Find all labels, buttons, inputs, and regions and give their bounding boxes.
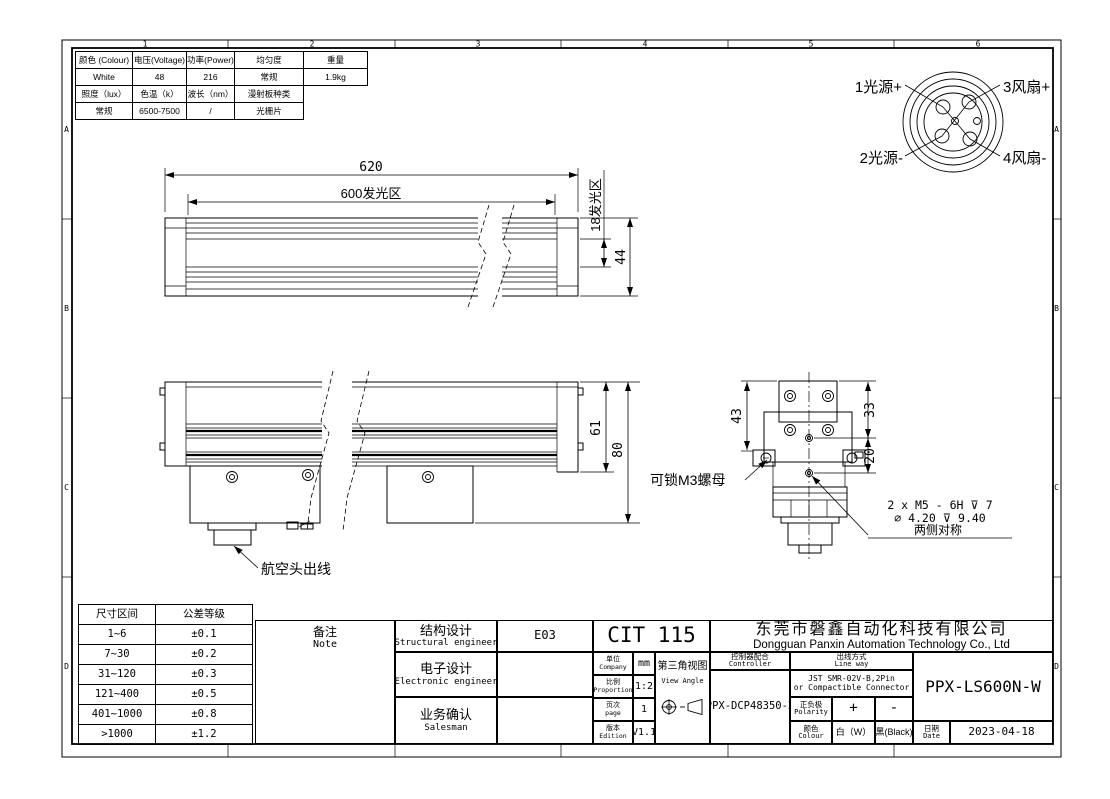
unit-value: mm: [633, 652, 655, 675]
zone-letter: B: [64, 304, 69, 313]
spec-cell: 48: [133, 69, 187, 86]
thread-note-line3: 两侧对称: [914, 523, 962, 537]
tolerance-cell: 31~120: [79, 665, 156, 685]
proportion-en: Proportion: [593, 687, 632, 694]
pin-label-1: 1光源+: [855, 79, 902, 96]
proportion-value: 1:2: [633, 675, 655, 698]
spec-cell: /: [187, 103, 235, 120]
pin-label-3: 3风扇+: [1003, 79, 1050, 96]
unit-en: Company: [599, 664, 626, 671]
colour-label: 颜色 Colour: [790, 721, 832, 744]
part-number: PPX-LS600N-W: [925, 678, 1041, 696]
company-name-en: Dongguan Panxin Automation Technology Co…: [753, 639, 1010, 652]
tolerance-cell: >1000: [79, 725, 156, 745]
engineering-drawing-sheet: 1 2 3 4 5 6 A B C D A B C D 1光源+ 3风扇+ 2光…: [0, 0, 1110, 799]
controller-value-text: PPX-DCP48350-2: [710, 701, 790, 713]
break-line: [492, 205, 514, 310]
side-view: 航空头出线 61 80: [160, 371, 640, 577]
dim-body-width: 44: [614, 249, 629, 265]
colour-white: 白（W）: [836, 727, 872, 737]
dim-end-43: 43: [730, 408, 745, 424]
lens-assembly: [773, 487, 847, 517]
view-angle-en: View Angle: [661, 678, 703, 686]
salesman-label: 业务确认 Salesman: [395, 697, 497, 744]
spec-cell: 功率(Power): [187, 52, 235, 69]
spec-cell-empty: [304, 103, 368, 120]
polarity-plus-cell: +: [832, 697, 875, 721]
tolerance-cell: ±1.2: [156, 725, 253, 745]
page-value: 1: [633, 698, 655, 721]
tolerance-cell: ±0.3: [156, 665, 253, 685]
colour-black-cell: 黑(Black): [875, 721, 913, 744]
aviation-connector-label: 航空头出线: [261, 561, 331, 577]
company-cell: 东莞市磐鑫自动化科技有限公司 Dongguan Panxin Automatio…: [710, 620, 1053, 652]
tolerance-header: 公差等级: [156, 605, 253, 625]
pin-label-4: 4风扇-: [1003, 150, 1046, 167]
zone-letter: A: [64, 125, 69, 134]
dim-overall-length: 620: [359, 160, 382, 175]
electronic-en: Electronic engineer: [395, 677, 497, 687]
end-view: 43 33 20 可锁M3螺母 2 x M5 - 6H ⊽ 7 ⌀ 4.20 ⊽…: [650, 372, 1012, 560]
controller-en: Controller: [729, 661, 771, 668]
tolerance-table: 尺寸区间 公差等级 1~6 ±0.1 7~30 ±0.2 31~120 ±0.3…: [78, 604, 253, 745]
mount-plate-left: [190, 466, 320, 523]
break-line: [343, 371, 369, 531]
dim-end-33: 33: [863, 402, 878, 418]
tolerance-cell: ±0.1: [156, 625, 253, 645]
note-label-en: Note: [313, 639, 337, 650]
controller-value: PPX-DCP48350-2: [710, 670, 790, 744]
spec-cell: 漫射板种类: [235, 86, 304, 103]
proportion-label: 比例 Proportion: [593, 675, 633, 698]
date-label: 日期 Date: [913, 721, 950, 744]
zone-number: 5: [809, 40, 814, 49]
structural-en: Structural engineer: [395, 638, 497, 648]
connector-pinout-view: 1光源+ 3风扇+ 2光源- 4风扇-: [855, 72, 1050, 172]
break-line: [467, 205, 489, 310]
unit-label: 单位 Company: [593, 652, 633, 675]
spec-cell: 波长（nm）: [187, 86, 235, 103]
tolerance-cell: 1~6: [79, 625, 156, 645]
date-value-text: 2023-04-18: [968, 726, 1034, 738]
dim-emit-width: 18发光区: [588, 178, 603, 231]
spec-cell: 均匀度: [235, 52, 304, 69]
zone-letter: C: [64, 483, 69, 492]
controller-label: 控制器配合 Controller: [710, 652, 790, 670]
spec-cell: 常规: [235, 69, 304, 86]
pin-label-2: 2光源-: [860, 150, 903, 167]
mount-plate-right: [387, 466, 473, 523]
spec-cell: White: [76, 69, 133, 86]
page-value-text: 1: [641, 704, 647, 715]
spec-cell: 1.9kg: [304, 69, 368, 86]
dim-end-20: 20: [863, 448, 878, 464]
thread-note-line1: 2 x M5 - 6H ⊽ 7: [887, 498, 992, 512]
spec-cell-empty: [304, 86, 368, 103]
tolerance-cell: ±0.8: [156, 705, 253, 725]
structural-value: E03: [534, 629, 556, 642]
colour-black: 黑(Black): [876, 727, 913, 737]
edition-value-text: V1.1: [633, 727, 655, 738]
view-angle-cn: 第三角视图: [658, 661, 708, 672]
note-label-cn: 备注: [313, 626, 337, 639]
salesman-cn: 业务确认: [420, 708, 472, 723]
note-cell: 备注 Note: [255, 620, 395, 744]
drawing-code-cell: CIT 115: [593, 620, 710, 652]
third-angle-projection-icon: [660, 696, 706, 718]
polarity-minus: -: [890, 701, 898, 717]
spec-cell: 照度（lux）: [76, 86, 133, 103]
salesman-value: [497, 697, 593, 744]
m3-nut-label: 可锁M3螺母: [650, 472, 725, 488]
spec-cell: 216: [187, 69, 235, 86]
polarity-label: 正负极 Polarity: [790, 697, 832, 721]
drawing-code: CIT 115: [607, 624, 696, 648]
electronic-engineer-label: 电子设计 Electronic engineer: [395, 652, 497, 697]
tolerance-header: 尺寸区间: [79, 605, 156, 625]
tolerance-cell: ±0.2: [156, 645, 253, 665]
end-cap: [788, 523, 832, 545]
structural-cn: 结构设计: [420, 624, 472, 639]
lineway-label: 出线方式 Line way: [790, 652, 913, 670]
page-label: 页次 page: [593, 698, 633, 721]
tolerance-cell: 401~1000: [79, 705, 156, 725]
dim-total-height: 80: [611, 442, 626, 458]
spec-table: 颜色 (Colour) 电压(Voltage) 功率(Power) 均匀度 重量…: [75, 51, 368, 120]
tolerance-cell: 121~400: [79, 685, 156, 705]
edition-label: 版本 Edition: [593, 721, 633, 744]
polarity-plus: +: [849, 701, 857, 717]
aviation-connector: [208, 523, 256, 530]
zone-letter: A: [1054, 125, 1059, 134]
edition-en: Edition: [599, 733, 626, 740]
view-angle-cell: 第三角视图 View Angle: [655, 652, 710, 744]
lineway-value: JST SMR-02V-B,2Pin or Compactible Connec…: [790, 670, 913, 697]
spec-cell: 颜色 (Colour): [76, 52, 133, 69]
structural-engineer-label: 结构设计 Structural engineer: [395, 620, 497, 652]
colour-en: Colour: [798, 733, 823, 740]
dim-emit-length: 600发光区: [341, 186, 402, 201]
spec-cell: 光栅片: [235, 103, 304, 120]
zone-letter: D: [64, 662, 69, 671]
part-number-cell: PPX-LS600N-W: [913, 652, 1053, 721]
structural-engineer-value: E03: [497, 620, 593, 652]
edition-value: V1.1: [633, 721, 655, 744]
zone-letter: B: [1054, 304, 1059, 313]
spec-cell: 重量: [304, 52, 368, 69]
spec-cell: 色温（k）: [133, 86, 187, 103]
spec-cell: 6500-7500: [133, 103, 187, 120]
electronic-engineer-value: [497, 652, 593, 697]
salesman-en: Salesman: [424, 723, 467, 733]
date-en: Date: [923, 733, 940, 740]
date-value: 2023-04-18: [950, 721, 1053, 744]
polarity-minus-cell: -: [875, 697, 913, 721]
page-en: page: [605, 710, 621, 717]
zone-letter: C: [1054, 483, 1059, 492]
dim-body-height: 61: [589, 420, 604, 436]
electronic-cn: 电子设计: [420, 662, 472, 677]
zone-number: 6: [976, 40, 981, 49]
lineway-en: Line way: [835, 661, 869, 668]
zone-letter: D: [1054, 662, 1059, 671]
zone-number: 2: [310, 40, 315, 49]
company-name-cn: 东莞市磐鑫自动化科技有限公司: [755, 621, 1007, 639]
lineway-value-line2: or Compactible Connector: [794, 684, 910, 693]
top-view: 620 600发光区 18发光区 44: [165, 160, 638, 310]
spec-cell: 常规: [76, 103, 133, 120]
zone-number: 4: [643, 40, 648, 49]
tolerance-cell: ±0.5: [156, 685, 253, 705]
polarity-en: Polarity: [794, 709, 828, 716]
colour-white-cell: 白（W）: [832, 721, 875, 744]
spec-cell: 电压(Voltage): [133, 52, 187, 69]
zone-number: 1: [143, 40, 148, 49]
proportion-value-text: 1:2: [635, 681, 653, 692]
zone-number: 3: [476, 40, 481, 49]
tolerance-cell: 7~30: [79, 645, 156, 665]
unit-value-text: mm: [638, 658, 650, 669]
